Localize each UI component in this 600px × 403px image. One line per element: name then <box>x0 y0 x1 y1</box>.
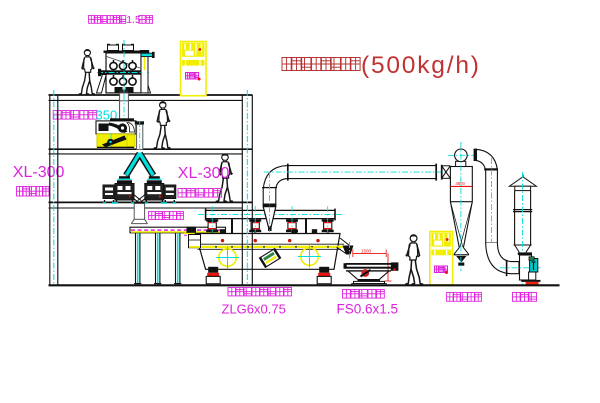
svg-text:1500: 1500 <box>361 248 372 253</box>
svg-text:FS0.6x1.5: FS0.6x1.5 <box>337 302 399 317</box>
svg-text:XL-300: XL-300 <box>13 164 65 181</box>
svg-text:ZLG6x0.75: ZLG6x0.75 <box>222 302 286 317</box>
svg-text:XL-300: XL-300 <box>178 165 230 182</box>
svg-text:(500kg/h): (500kg/h) <box>361 52 481 79</box>
